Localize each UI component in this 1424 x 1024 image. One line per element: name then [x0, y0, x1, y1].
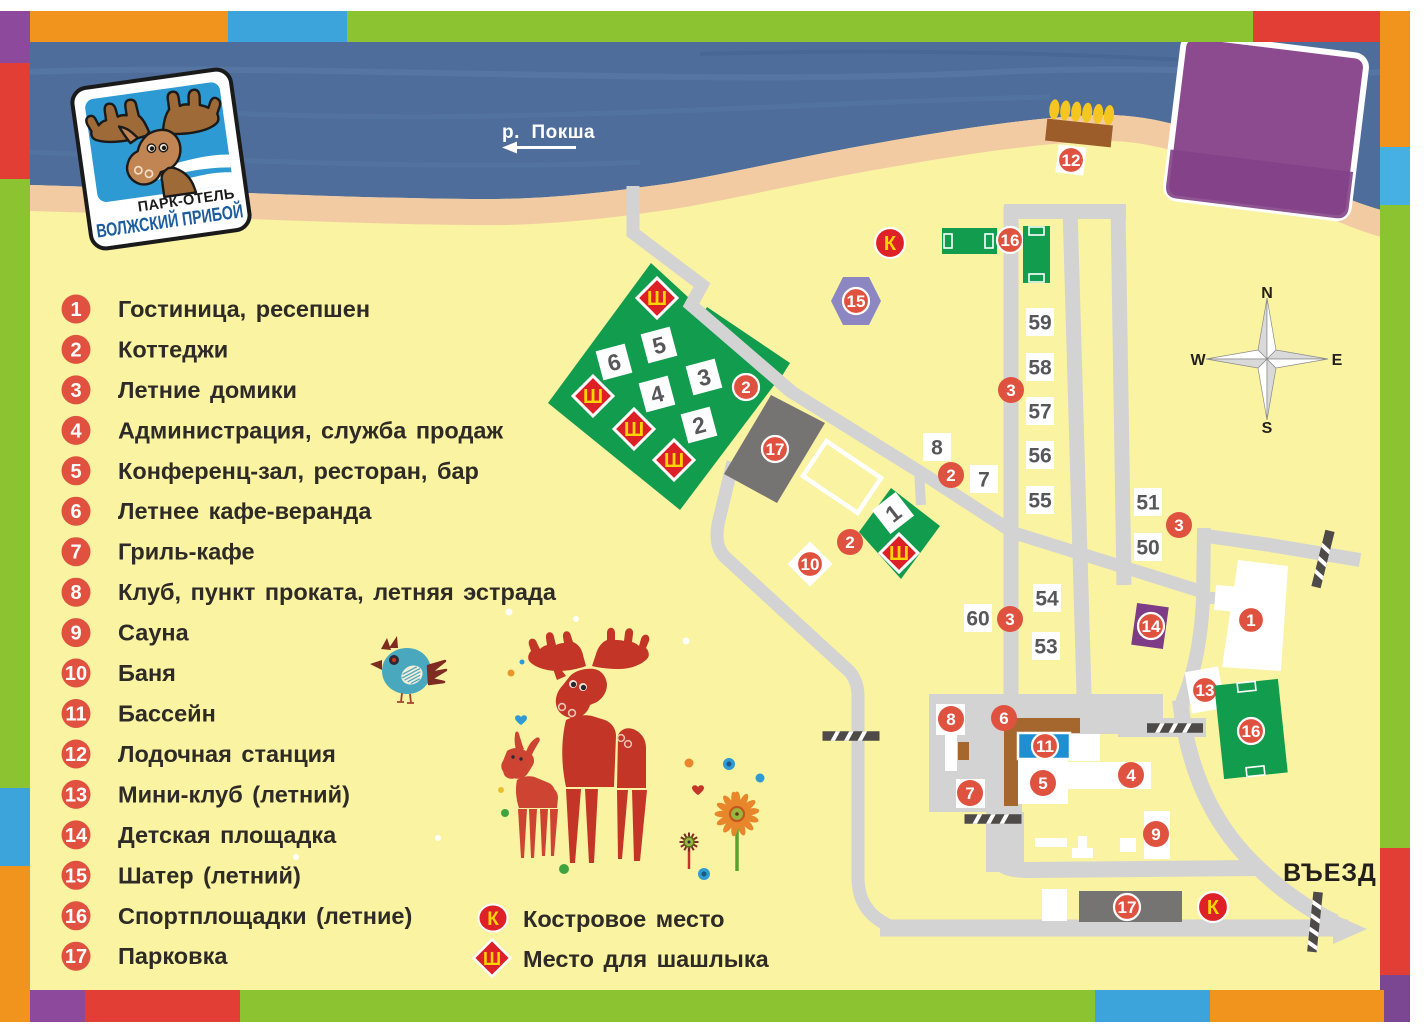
svg-text:51: 51: [1136, 492, 1160, 515]
svg-text:р. Покша: р. Покша: [502, 122, 595, 143]
svg-text:16: 16: [1242, 722, 1261, 741]
svg-text:2: 2: [845, 533, 854, 552]
svg-text:2: 2: [946, 466, 955, 485]
svg-text:14: 14: [1142, 617, 1161, 636]
svg-text:S: S: [1262, 420, 1273, 437]
svg-text:Ш: Ш: [583, 386, 603, 408]
svg-text:11: 11: [65, 704, 86, 726]
svg-text:58: 58: [1028, 357, 1052, 380]
svg-text:Летние домики: Летние домики: [118, 377, 297, 403]
svg-text:59: 59: [1028, 312, 1051, 335]
svg-text:12: 12: [1062, 151, 1081, 170]
svg-text:8: 8: [70, 582, 81, 604]
svg-text:13: 13: [1196, 681, 1215, 700]
svg-text:Ш: Ш: [624, 419, 644, 441]
svg-text:17: 17: [766, 440, 785, 459]
svg-text:Ш: Ш: [647, 288, 667, 310]
svg-text:3: 3: [1005, 610, 1014, 629]
svg-text:Баня: Баня: [118, 660, 176, 686]
svg-text:Мини-клуб (летний): Мини-клуб (летний): [118, 781, 350, 807]
svg-text:Шатер (летний): Шатер (летний): [118, 862, 301, 888]
svg-text:6: 6: [999, 709, 1008, 728]
svg-text:13: 13: [65, 784, 87, 806]
svg-text:16: 16: [1001, 231, 1020, 250]
svg-text:4: 4: [70, 420, 82, 442]
svg-text:8: 8: [931, 437, 943, 460]
svg-text:Клуб, пункт проката, летняя эс: Клуб, пункт проката, летняя эстрада: [118, 579, 557, 605]
svg-text:53: 53: [1034, 636, 1057, 659]
svg-text:ВЪЕЗД: ВЪЕЗД: [1283, 859, 1377, 887]
svg-text:12: 12: [65, 744, 87, 766]
svg-text:Лодочная станция: Лодочная станция: [118, 741, 336, 767]
svg-text:57: 57: [1028, 401, 1051, 424]
svg-text:N: N: [1261, 285, 1273, 302]
svg-text:W: W: [1190, 352, 1206, 369]
svg-text:56: 56: [1028, 445, 1051, 468]
svg-text:Ш: Ш: [483, 949, 501, 969]
svg-text:15: 15: [847, 292, 866, 311]
svg-text:3: 3: [1006, 381, 1015, 400]
svg-text:7: 7: [978, 469, 990, 492]
svg-text:Администрация, служба продаж: Администрация, служба продаж: [118, 417, 503, 443]
svg-text:Конференц-зал, ресторан, бар: Конференц-зал, ресторан, бар: [118, 458, 479, 484]
svg-text:10: 10: [65, 663, 87, 685]
svg-text:4: 4: [1126, 766, 1136, 785]
svg-text:50: 50: [1136, 537, 1159, 560]
svg-text:5: 5: [1038, 774, 1047, 793]
svg-text:Ш: Ш: [889, 543, 909, 565]
svg-text:11: 11: [1036, 737, 1054, 756]
svg-text:55: 55: [1028, 490, 1052, 513]
svg-text:17: 17: [65, 946, 87, 968]
svg-text:14: 14: [65, 825, 88, 847]
svg-text:К: К: [487, 909, 499, 930]
svg-text:3: 3: [70, 380, 81, 402]
svg-text:17: 17: [1118, 898, 1137, 917]
svg-text:Парковка: Парковка: [118, 943, 228, 969]
svg-text:Спортплощадки (летние): Спортплощадки (летние): [118, 903, 412, 929]
svg-text:5: 5: [70, 461, 81, 483]
svg-text:60: 60: [966, 608, 989, 631]
svg-text:3: 3: [1174, 516, 1183, 535]
svg-text:Коттеджи: Коттеджи: [118, 336, 228, 362]
svg-text:1: 1: [70, 299, 81, 321]
svg-text:10: 10: [801, 555, 820, 574]
svg-text:Гостиница, ресепшен: Гостиница, ресепшен: [118, 296, 370, 322]
svg-text:2: 2: [70, 339, 81, 361]
svg-text:9: 9: [70, 623, 81, 645]
svg-text:9: 9: [1151, 825, 1160, 844]
svg-text:7: 7: [965, 784, 974, 803]
svg-text:Детская площадка: Детская площадка: [118, 822, 337, 848]
svg-text:2: 2: [741, 378, 750, 397]
svg-text:16: 16: [65, 906, 87, 928]
svg-text:Сауна: Сауна: [118, 620, 190, 646]
svg-text:К: К: [884, 233, 897, 255]
svg-text:15: 15: [65, 865, 87, 887]
svg-text:Место для шашлыка: Место для шашлыка: [523, 946, 770, 972]
svg-text:Гриль-кафе: Гриль-кафе: [118, 539, 255, 565]
svg-text:Ш: Ш: [664, 450, 684, 472]
svg-text:7: 7: [70, 542, 81, 564]
svg-text:6: 6: [70, 501, 81, 523]
svg-text:54: 54: [1035, 588, 1059, 611]
svg-text:Костровое место: Костровое место: [523, 906, 725, 932]
svg-text:Бассейн: Бассейн: [118, 701, 216, 727]
svg-text:8: 8: [946, 710, 955, 729]
svg-text:E: E: [1332, 352, 1343, 369]
svg-text:К: К: [1207, 897, 1220, 919]
svg-text:1: 1: [1246, 611, 1255, 630]
svg-text:Летнее кафе-веранда: Летнее кафе-веранда: [118, 498, 372, 524]
